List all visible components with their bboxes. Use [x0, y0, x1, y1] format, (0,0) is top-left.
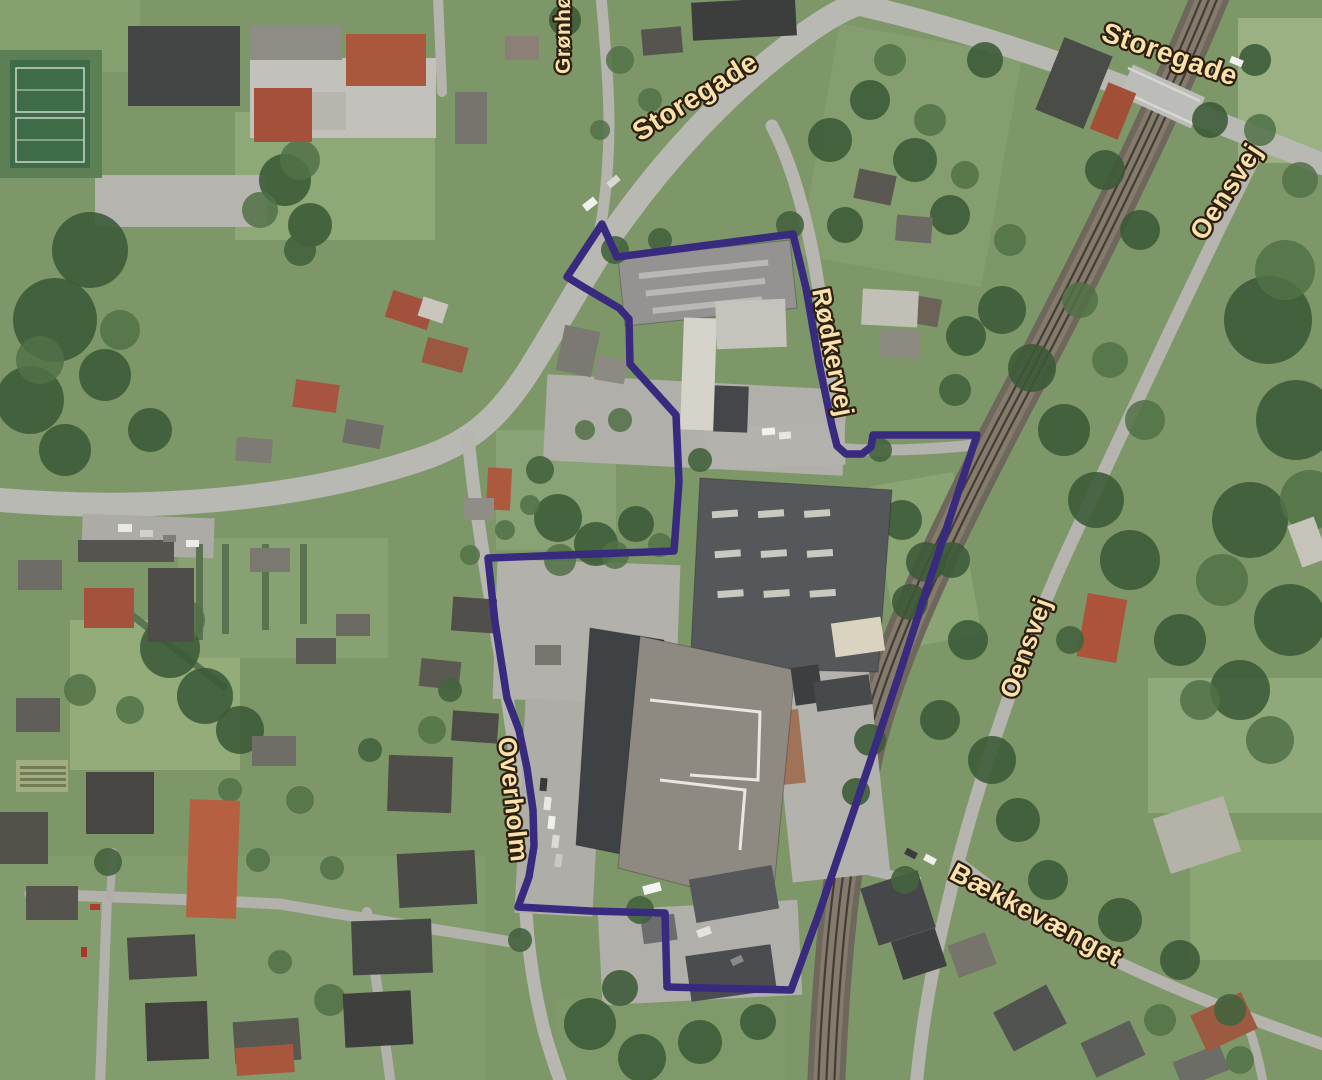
- tree: [128, 408, 172, 452]
- tree: [1180, 680, 1220, 720]
- vehicle: [81, 947, 87, 957]
- tree: [1085, 150, 1125, 190]
- tree: [94, 848, 122, 876]
- tree: [1282, 162, 1318, 198]
- tree: [1154, 614, 1206, 666]
- tree: [284, 234, 316, 266]
- tree: [978, 286, 1026, 334]
- tree: [618, 1034, 666, 1080]
- building: [387, 755, 453, 813]
- building: [351, 919, 433, 976]
- tree: [1160, 940, 1200, 980]
- building: [1081, 1020, 1146, 1077]
- building: [535, 645, 561, 665]
- tree: [1254, 584, 1322, 656]
- vehicle: [923, 854, 937, 866]
- tree: [460, 545, 480, 565]
- tree: [1056, 626, 1084, 654]
- tree: [1196, 554, 1248, 606]
- tree: [1244, 114, 1276, 146]
- tree: [1008, 344, 1056, 392]
- tree: [314, 984, 346, 1016]
- tree: [590, 120, 610, 140]
- tree: [534, 494, 582, 542]
- building: [594, 356, 628, 385]
- building: [861, 289, 919, 328]
- tree: [358, 738, 382, 762]
- road-groenhoj: [598, 0, 609, 240]
- building: [715, 299, 787, 349]
- building: [16, 698, 60, 732]
- building: [26, 886, 78, 920]
- tree: [948, 620, 988, 660]
- tree: [1038, 404, 1090, 456]
- tree: [508, 928, 532, 952]
- tree: [564, 998, 616, 1050]
- tree: [1246, 716, 1294, 764]
- building: [252, 736, 296, 766]
- tree: [1226, 1046, 1254, 1074]
- building: [296, 638, 336, 664]
- tree: [1125, 400, 1165, 440]
- tree: [891, 866, 919, 894]
- vehicle: [547, 816, 555, 830]
- building: [342, 419, 384, 449]
- building: [713, 385, 749, 432]
- hedge-row: [20, 778, 66, 781]
- tree: [1255, 240, 1315, 300]
- tree: [520, 495, 540, 515]
- tree: [1212, 482, 1288, 558]
- building: [250, 26, 342, 60]
- tree: [827, 207, 863, 243]
- building: [993, 984, 1067, 1051]
- building: [451, 710, 499, 743]
- tree: [893, 138, 937, 182]
- tree: [688, 448, 712, 472]
- building: [680, 317, 717, 430]
- building: [464, 498, 494, 520]
- hedge-row: [20, 784, 66, 787]
- tree: [602, 970, 638, 1006]
- building: [78, 540, 174, 562]
- tree: [996, 798, 1040, 842]
- vehicle: [904, 848, 918, 860]
- vehicle: [779, 431, 792, 439]
- tree: [79, 349, 131, 401]
- tree: [608, 408, 632, 432]
- tree: [16, 336, 64, 384]
- building: [86, 772, 154, 834]
- tree: [1256, 380, 1322, 460]
- building: [235, 1044, 295, 1076]
- tree: [1100, 530, 1160, 590]
- tree: [280, 140, 320, 180]
- terrain-patch: [16, 760, 68, 792]
- building: [879, 329, 920, 359]
- tree: [64, 674, 96, 706]
- building: [691, 0, 797, 41]
- vehicle: [762, 427, 776, 435]
- vehicle: [642, 882, 662, 895]
- tree: [678, 1020, 722, 1064]
- tree: [268, 950, 292, 974]
- road-residential-v1: [100, 897, 107, 1080]
- tree: [874, 44, 906, 76]
- building: [145, 1001, 209, 1061]
- building: [18, 560, 62, 590]
- tree: [967, 42, 1003, 78]
- vehicle: [163, 535, 176, 542]
- building: [421, 337, 468, 373]
- tree: [994, 224, 1026, 256]
- building: [1077, 593, 1128, 663]
- tree: [116, 696, 144, 724]
- tree: [1120, 210, 1160, 250]
- tree: [951, 161, 979, 189]
- tree: [939, 374, 971, 406]
- street-label: Oensvej: [993, 593, 1057, 702]
- parking-lot: [95, 175, 267, 227]
- building: [641, 26, 683, 55]
- building: [127, 934, 197, 980]
- tree: [740, 1004, 776, 1040]
- building: [292, 379, 339, 413]
- building: [343, 990, 414, 1047]
- building: [254, 88, 312, 142]
- road-school-drive: [438, 0, 442, 92]
- tree: [39, 424, 91, 476]
- hedge-row: [222, 544, 229, 634]
- tree: [618, 506, 654, 542]
- hedge-row: [20, 766, 66, 769]
- building: [312, 92, 346, 130]
- tree: [920, 700, 960, 740]
- tree: [808, 118, 852, 162]
- building: [84, 588, 134, 628]
- hedge-row: [300, 544, 307, 624]
- tree: [914, 104, 946, 136]
- building: [148, 568, 194, 642]
- tree: [218, 778, 242, 802]
- vehicle: [140, 530, 153, 537]
- tennis-court: [0, 50, 102, 178]
- aerial-map-view[interactable]: GrønhøjStoregadeStoregadeOensvejRødkerve…: [0, 0, 1322, 1080]
- tree: [850, 80, 890, 120]
- vehicle: [118, 524, 132, 532]
- tree: [544, 544, 576, 576]
- tree: [418, 716, 446, 744]
- tree: [1210, 660, 1270, 720]
- building: [947, 932, 996, 978]
- road-site-drive: [836, 444, 984, 450]
- building: [128, 26, 240, 106]
- tree: [575, 420, 595, 440]
- tree: [438, 678, 462, 702]
- building: [895, 214, 933, 243]
- vehicle: [90, 904, 100, 910]
- building: [505, 36, 539, 60]
- tree: [1068, 472, 1124, 528]
- tree: [100, 310, 140, 350]
- tree: [606, 46, 634, 74]
- building: [235, 436, 273, 463]
- tree: [286, 786, 314, 814]
- vehicle: [186, 540, 199, 547]
- tree: [1214, 994, 1246, 1026]
- vehicle: [543, 797, 551, 811]
- tree: [930, 195, 970, 235]
- building: [831, 617, 885, 658]
- tree: [1028, 860, 1068, 900]
- tree: [1192, 102, 1228, 138]
- building: [0, 812, 48, 864]
- tree: [946, 316, 986, 356]
- aerial-photo: GrønhøjStoregadeStoregadeOensvejRødkerve…: [0, 0, 1322, 1080]
- tree: [1092, 342, 1128, 378]
- building: [186, 799, 240, 919]
- tree: [1062, 282, 1098, 318]
- tree: [968, 736, 1016, 784]
- building: [346, 34, 426, 86]
- tree: [1144, 1004, 1176, 1036]
- street-label: Grønhøj: [552, 0, 575, 74]
- tree: [320, 856, 344, 880]
- building: [455, 92, 487, 144]
- vehicle: [539, 778, 547, 792]
- building: [250, 548, 290, 572]
- tree: [52, 212, 128, 288]
- tree: [526, 456, 554, 484]
- building: [1173, 1044, 1230, 1080]
- building: [336, 614, 370, 636]
- hedge-row: [20, 772, 66, 775]
- tree: [495, 520, 515, 540]
- vehicle: [582, 197, 598, 212]
- tree: [1239, 44, 1271, 76]
- building: [397, 850, 478, 908]
- tree: [242, 192, 278, 228]
- tree: [246, 848, 270, 872]
